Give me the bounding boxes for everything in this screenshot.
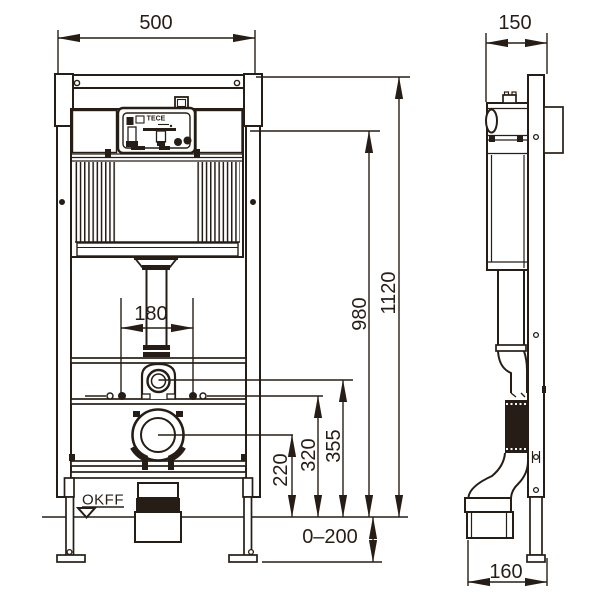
floor-level-label: OKFF: [82, 493, 124, 508]
cistern-side: [486, 92, 528, 270]
drawing-linework: [0, 0, 600, 600]
dim-label-fixing-height: 320: [299, 438, 319, 471]
dim-label-outlet-offset: 160: [489, 562, 522, 582]
dim-label-cistern-height: 980: [350, 297, 370, 330]
outlet-elbow-side: [465, 453, 528, 538]
side-rail: [527, 75, 563, 562]
side-view: [465, 75, 563, 562]
brand-logo-text: TECE: [147, 116, 166, 123]
dim-label-flush-bend-height: 355: [324, 429, 344, 462]
top-rail: [63, 75, 244, 88]
dim-label-leg-adjustment: 0–200: [302, 527, 358, 547]
flush-pipe-side: [496, 270, 528, 453]
floor-level-marker: [78, 507, 124, 518]
dim-label-frame-width: 500: [139, 13, 172, 33]
dim-label-bolt-spacing: 180: [134, 304, 167, 324]
dim-label-outlet-height: 220: [271, 453, 291, 486]
flush-bend: [142, 364, 175, 399]
outlet-socket: [135, 483, 181, 542]
inspection-window: [118, 97, 195, 153]
technical-drawing-installation-frame: 500 150 180 1120 980 355 320 220 0–200 1…: [0, 0, 600, 600]
dim-label-frame-depth: 150: [498, 13, 531, 33]
dim-label-frame-height: 1120: [379, 271, 399, 314]
dim-500: [58, 30, 255, 75]
